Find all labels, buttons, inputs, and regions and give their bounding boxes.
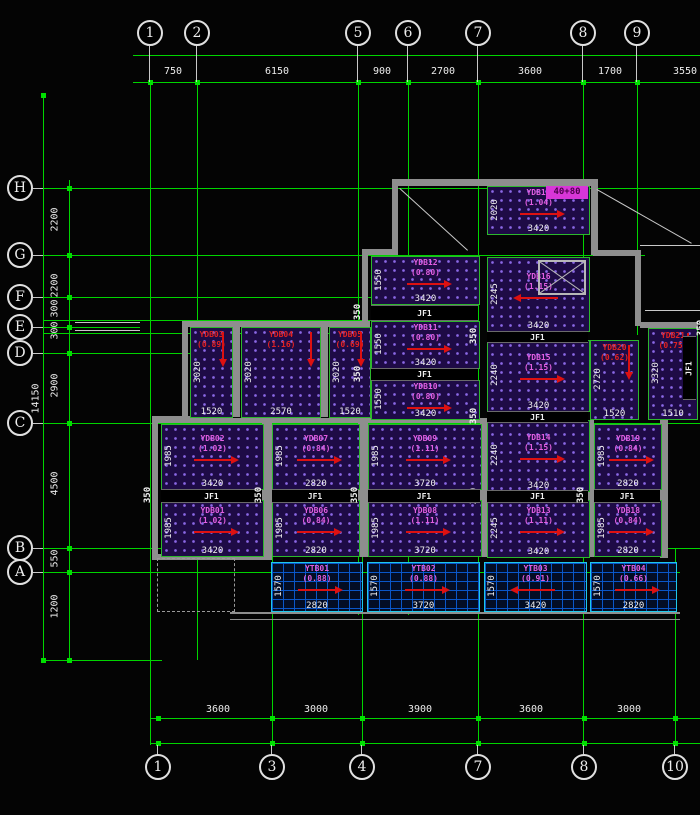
panel-label: YTB01: [272, 565, 362, 574]
joint-strip-label: JF1: [530, 492, 544, 501]
arrow-down-icon: [310, 332, 312, 360]
joint-strip-dim: 350: [254, 475, 264, 515]
panel-height-dim: 1570: [487, 566, 497, 606]
grid-line-vertical: [150, 82, 151, 745]
panel-label: YDB09: [369, 435, 481, 444]
grid-bubble-bottom-10[interactable]: 10: [662, 754, 688, 780]
panel-width-dim: 3420: [162, 479, 263, 489]
panel-label: YDB08: [369, 507, 481, 516]
joint-strip-jf1: JF1350: [487, 331, 588, 343]
panel-height-dim: 1570: [593, 566, 603, 606]
joint-strip-label: JF1: [308, 492, 322, 501]
panel-width-dim: 3720: [369, 546, 481, 556]
bubble-leader: [33, 572, 43, 573]
panel-YDB12[interactable]: YDB12(0.80)34201550: [371, 256, 480, 305]
wall-segment: [635, 250, 641, 326]
arrow-right-icon: [406, 531, 444, 533]
panel-YDB13[interactable]: YDB13(1.11)34202245: [487, 500, 590, 558]
wall-segment: [392, 179, 398, 255]
dimension-tick: [360, 716, 365, 721]
arrow-down-icon: [628, 345, 630, 373]
grid-bubble-left-B[interactable]: B: [7, 535, 33, 561]
panel-height-dim: 1985: [371, 508, 381, 548]
panel-height-dim: 2245: [490, 274, 500, 314]
joint-strip-dim: 350: [143, 475, 153, 515]
arrow-right-icon: [405, 589, 443, 591]
panel-YDB02[interactable]: YDB02(1.02)34201985: [161, 424, 264, 490]
bubble-leader: [33, 353, 43, 354]
dimension-text: 2200: [50, 190, 61, 250]
grid-bubble-left-F[interactable]: F: [7, 284, 33, 310]
dimension-tick: [67, 295, 72, 300]
dimension-text: 3550: [655, 66, 700, 77]
dimension-tick: [67, 186, 72, 191]
dimension-text: 4500: [50, 454, 61, 514]
grid-bubble-bottom-1[interactable]: 1: [145, 754, 171, 780]
dimension-tick: [156, 716, 161, 721]
arrow-right-icon: [520, 378, 558, 380]
panel-YTB02[interactable]: YTB02(0.88)37201570: [367, 562, 480, 612]
dimension-text: 2700: [413, 66, 473, 77]
grid-line-vertical: [43, 95, 44, 660]
dimension-text: 3000: [599, 704, 659, 715]
grid-bubble-top-8[interactable]: 8: [570, 20, 596, 46]
dimension-text: 2900: [50, 356, 61, 416]
dimension-text: 6150: [247, 66, 307, 77]
grid-bubble-left-G[interactable]: G: [7, 242, 33, 268]
panel-load-value: (1.11): [369, 445, 481, 454]
panel-load-value: (1.04): [488, 199, 589, 208]
panel-width-dim: 3420: [372, 358, 479, 368]
arrow-right-icon: [194, 459, 232, 461]
arrow-right-icon: [520, 531, 558, 533]
grid-bubble-left-A[interactable]: A: [7, 559, 33, 585]
dimension-tick: [67, 421, 72, 426]
wall-segment: [593, 250, 641, 256]
grid-line-vertical: [69, 180, 70, 660]
dimension-text: 3600: [501, 704, 561, 715]
panel-width-dim: 1520: [191, 407, 232, 417]
grid-bubble-top-2[interactable]: 2: [184, 20, 210, 46]
panel-label: YTB03: [485, 565, 586, 574]
panel-width-dim: 1510: [649, 409, 697, 419]
panel-YDB03[interactable]: YDB03(0.89)15203020: [190, 327, 233, 418]
bubble-leader: [33, 255, 43, 256]
panel-YTB03[interactable]: YTB03(0.91)34201570: [484, 562, 587, 612]
wall-segment: [230, 619, 680, 620]
panel-label: YDB15: [488, 354, 589, 363]
panel-YDB08[interactable]: YDB08(1.11)37201985: [368, 500, 482, 557]
grid-bubble-left-C[interactable]: C: [7, 410, 33, 436]
joint-strip-jf1: JF1350: [371, 305, 478, 321]
dimension-text-overall: 14150: [31, 369, 42, 429]
panel-height-dim: 2020: [490, 190, 500, 230]
dimension-tick: [673, 716, 678, 721]
grid-bubble-left-H[interactable]: H: [7, 175, 33, 201]
panel-height-dim: 1985: [275, 436, 285, 476]
panel-height-dim: 1570: [370, 566, 380, 606]
dimension-tick: [67, 351, 72, 356]
shaft-x-box: [538, 260, 586, 295]
grid-bubble-bottom-8[interactable]: 8: [571, 754, 597, 780]
joint-strip-dim: 350: [353, 292, 363, 332]
panel-label: YDB03: [191, 331, 232, 340]
panel-load-value: (0.80): [372, 393, 479, 402]
joint-strip-jf1: JF1350: [594, 489, 660, 503]
joint-strip-dim: 350: [696, 308, 700, 348]
panel-load-value: (1.11): [369, 517, 481, 526]
panel-height-dim: 1550: [374, 260, 384, 300]
panel-height-dim: 1985: [164, 436, 174, 476]
arrow-left-icon: [517, 589, 555, 591]
arrow-right-icon: [520, 213, 558, 215]
panel-width-dim: 1520: [330, 407, 370, 417]
panel-YDB01[interactable]: YDB01(1.02)34201985: [161, 500, 264, 557]
arrow-right-icon: [298, 589, 336, 591]
dimension-text: 3600: [500, 66, 560, 77]
panel-YDB06[interactable]: YDB06(0.84)28201985: [272, 500, 360, 557]
panel-width-dim: 3720: [368, 601, 479, 611]
panel-label: YDB07: [273, 435, 359, 444]
dimension-text: 750: [143, 66, 203, 77]
panel-load-value: (0.80): [372, 334, 479, 343]
grid-bubble-top-7[interactable]: 7: [465, 20, 491, 46]
joint-strip-label: JF1: [417, 309, 431, 318]
grid-line-horizontal: [150, 718, 700, 719]
panel-YDB07[interactable]: YDB07(0.84)28201985: [272, 424, 360, 490]
dimension-tick: [67, 570, 72, 575]
panel-load-value: (0.88): [368, 575, 479, 584]
grid-line-horizontal: [43, 255, 645, 256]
panel-height-dim: 2720: [593, 359, 603, 399]
grid-bubble-bottom-7[interactable]: 7: [465, 754, 491, 780]
arrow-right-icon: [406, 459, 444, 461]
panel-load-value: (0.89): [191, 341, 232, 350]
panel-height-dim: 2240: [490, 435, 500, 475]
panel-height-dim: 1985: [597, 508, 607, 548]
panel-height-dim: 1985: [597, 436, 607, 476]
panel-height-dim: 2245: [490, 508, 500, 548]
arrow-right-icon: [407, 348, 445, 350]
panel-width-dim: 2570: [242, 407, 320, 417]
panel-label: YDB05: [330, 331, 370, 340]
construction-line: [645, 310, 700, 311]
panel-width-dim: 2820: [595, 479, 661, 489]
construction-line: [597, 189, 692, 244]
panel-label: YTB02: [368, 565, 479, 574]
arrow-right-icon: [194, 531, 232, 533]
panel-load-value: (0.66): [591, 575, 676, 584]
grid-bubble-left-D[interactable]: D: [7, 340, 33, 366]
grid-bubble-bottom-3[interactable]: 3: [259, 754, 285, 780]
cad-canvas[interactable]: 12567891347810HGFEDCBA750615090027003600…: [0, 0, 700, 815]
arrow-right-icon: [615, 589, 653, 591]
panel-height-dim: 1570: [274, 566, 284, 606]
dimension-text: 3000: [286, 704, 346, 715]
panel-width-dim: 3720: [369, 479, 481, 489]
panel-load-value: (1.11): [488, 517, 589, 526]
joint-strip-jf1: JF1350: [683, 336, 696, 400]
dimension-tick: [582, 716, 587, 721]
panel-YTB01[interactable]: YTB01(0.88)28201570: [271, 562, 363, 612]
panel-height-dim: 3020: [332, 352, 342, 392]
panel-load-value: (0.84): [273, 517, 359, 526]
joint-strip-label: JF1: [530, 333, 544, 342]
dimension-tick: [67, 253, 72, 258]
panel-YDB05[interactable]: YDB05(0.69)15203020: [329, 327, 371, 418]
panel-label: YDB10: [372, 383, 479, 392]
grid-line-horizontal: [43, 660, 162, 661]
panel-YDB11[interactable]: YDB11(0.80)34201550: [371, 321, 480, 369]
construction-line: [75, 322, 140, 323]
dashed-outline: [157, 558, 235, 612]
joint-strip-dim: 350: [469, 316, 479, 356]
panel-width-dim: 3420: [485, 601, 586, 611]
panel-label: YDB02: [162, 435, 263, 444]
panel-YDB15[interactable]: YDB15(1.15)34202240: [487, 340, 590, 412]
dimension-text: 900: [352, 66, 412, 77]
dimension-text: 300: [50, 301, 61, 361]
panel-load-value: (0.91): [485, 575, 586, 584]
grid-line-horizontal: [133, 82, 700, 83]
grid-line-horizontal: [133, 55, 700, 56]
panel-width-dim: 2820: [272, 601, 362, 611]
panel-YDB09[interactable]: YDB09(1.11)37201985: [368, 424, 482, 490]
construction-line: [75, 330, 140, 331]
joint-strip-dim: 350: [353, 354, 363, 394]
arrow-right-icon: [609, 531, 647, 533]
panel-YDB10[interactable]: YDB10(0.80)34201550: [371, 380, 480, 420]
panel-YDB19[interactable]: YDB19(0.84)28201985: [594, 424, 662, 490]
panel-YDB20[interactable]: YDB20(0.62)15202720: [590, 340, 639, 420]
panel-height-dim: 1550: [374, 379, 384, 419]
panel-YTB04[interactable]: YTB04(0.66)28201570: [590, 562, 677, 612]
bubble-leader: [33, 188, 43, 189]
dimension-tick: [67, 658, 72, 663]
panel-label: YDB04: [242, 331, 320, 340]
grid-line-horizontal: [43, 353, 195, 354]
panel-width-dim: 2820: [273, 546, 359, 556]
joint-strip-dim: 350: [469, 396, 479, 436]
panel-load-value: (0.80): [372, 269, 479, 278]
panel-label: YDB12: [372, 259, 479, 268]
panel-label: YDB13: [488, 507, 589, 516]
grid-line-horizontal: [43, 188, 700, 189]
bubble-leader: [33, 327, 43, 328]
panel-height-dim: 3020: [244, 352, 254, 392]
joint-strip-dim: 350: [350, 475, 360, 515]
joint-strip-dim: 350: [576, 475, 586, 515]
joint-strip-label: JF1: [204, 492, 218, 501]
panel-height-dim: 1985: [275, 508, 285, 548]
dimension-tick: [476, 716, 481, 721]
panel-load-value: (0.88): [272, 575, 362, 584]
panel-label: YDB11: [372, 324, 479, 333]
panel-label: YDB20: [591, 344, 638, 353]
joint-strip-jf1: JF1350: [161, 489, 262, 503]
arrow-down-icon: [222, 332, 224, 360]
panel-width-dim: 3420: [162, 546, 263, 556]
joint-strip-label: JF1: [530, 413, 544, 422]
grid-bubble-left-E[interactable]: E: [7, 314, 33, 340]
joint-strip-jf1: JF1350: [371, 368, 478, 381]
arrow-left-icon: [520, 297, 558, 299]
dimension-text: 1700: [580, 66, 640, 77]
bubble-leader: [33, 548, 43, 549]
panel-load-value: (1.15): [488, 364, 589, 373]
grid-bubble-top-5[interactable]: 5: [345, 20, 371, 46]
grid-bubble-top-1[interactable]: 1: [137, 20, 163, 46]
grid-line-horizontal: [150, 743, 700, 744]
dimension-text: 1200: [50, 577, 61, 637]
dimension-tick: [67, 325, 72, 330]
wall-segment: [230, 612, 680, 614]
arrow-right-icon: [609, 459, 647, 461]
dimension-tick: [41, 93, 46, 98]
arrow-right-icon: [297, 531, 335, 533]
bubble-leader: [477, 46, 478, 82]
grid-bubble-bottom-4[interactable]: 4: [349, 754, 375, 780]
panel-width-dim: 3420: [372, 294, 479, 304]
panel-width-dim: 3420: [488, 401, 589, 411]
panel-height-dim: 1985: [371, 436, 381, 476]
panel-width-dim: 2820: [273, 479, 359, 489]
panel-height-dim: 3320: [651, 353, 661, 393]
panel-width-dim: 3420: [372, 409, 479, 419]
panel-height-dim: 3020: [193, 352, 203, 392]
grid-bubble-top-6[interactable]: 6: [395, 20, 421, 46]
joint-strip-label: JF1: [620, 492, 634, 501]
panel-load-value: (1.15): [488, 444, 589, 453]
panel-height-dim: 1550: [374, 324, 384, 364]
panel-load-value: (1.16): [242, 341, 320, 350]
panel-width-dim: 1520: [591, 409, 638, 419]
panel-width-dim: 3420: [488, 547, 589, 557]
construction-line: [399, 188, 468, 251]
panel-width-dim: 3420: [488, 224, 589, 234]
panel-label: YTB04: [591, 565, 676, 574]
panel-load-value: (1.02): [162, 445, 263, 454]
joint-strip-label: JF1: [685, 361, 694, 375]
dimension-tick: [41, 658, 46, 663]
arrow-right-icon: [297, 459, 335, 461]
joint-strip-jf1: JF1350: [487, 490, 588, 503]
panel-label: YDB01: [162, 507, 263, 516]
panel-YDB14[interactable]: YDB14(1.15)34202240: [487, 420, 590, 492]
wall-segment: [182, 321, 188, 419]
grid-bubble-top-9[interactable]: 9: [624, 20, 650, 46]
selected-text-highlight[interactable]: 40+80: [546, 186, 588, 199]
panel-width-dim: 3420: [488, 321, 589, 331]
construction-line: [640, 245, 700, 246]
joint-strip-label: JF1: [417, 492, 431, 501]
panel-YDB18[interactable]: YDB18(0.84)28201985: [594, 500, 662, 557]
panel-label: YDB06: [273, 507, 359, 516]
arrow-right-icon: [520, 458, 558, 460]
joint-strip-jf1: JF1350: [487, 411, 588, 423]
joint-strip-jf1: JF1350: [272, 489, 358, 503]
panel-load-value: (1.02): [162, 517, 263, 526]
arrow-right-icon: [407, 283, 445, 285]
joint-strip-jf1: JF1350: [368, 489, 480, 503]
panel-width-dim: 2820: [591, 601, 676, 611]
panel-load-value: (0.69): [330, 341, 370, 350]
dimension-tick: [270, 716, 275, 721]
bubble-leader: [33, 297, 43, 298]
dimension-text: 3900: [390, 704, 450, 715]
joint-strip-label: JF1: [417, 370, 431, 379]
panel-YDB04[interactable]: YDB04(1.16)25703020: [241, 327, 321, 418]
panel-height-dim: 1985: [164, 508, 174, 548]
dimension-tick: [67, 546, 72, 551]
wall-segment: [392, 179, 597, 186]
panel-label: YDB14: [488, 434, 589, 443]
panel-height-dim: 2240: [490, 355, 500, 395]
dimension-text: 3600: [188, 704, 248, 715]
panel-load-value: (0.84): [273, 445, 359, 454]
